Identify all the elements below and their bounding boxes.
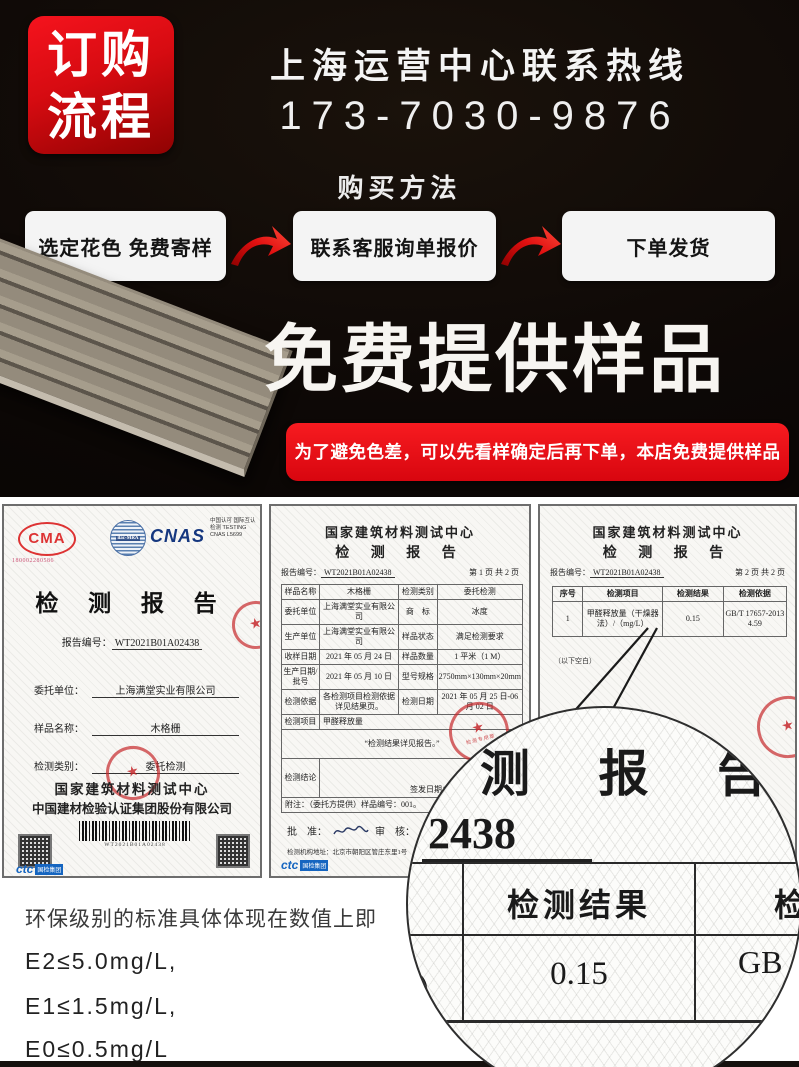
arrow-right-icon bbox=[227, 220, 293, 274]
table-line bbox=[408, 1020, 799, 1023]
page-indicator: 第 2 页 共 2 页 bbox=[735, 567, 785, 578]
eco-grade-intro: 环保级别的标准具体体现在数值上即 bbox=[25, 903, 377, 933]
table-line bbox=[408, 934, 799, 936]
table-row: 样品名称 木格栅 检测类别 委托检测 bbox=[282, 585, 523, 600]
table-line bbox=[694, 862, 696, 1022]
hotline-phone: 173-7030-9876 bbox=[160, 94, 799, 139]
table-row: 生产日期/批号 2021 年 05 月 10 日 型号规格 2750mm×130… bbox=[282, 665, 523, 690]
magnified-result-value: 0.15 bbox=[464, 956, 694, 993]
result-value-cell: 0.15 bbox=[662, 602, 723, 637]
cma-number: 180002280586 bbox=[12, 558, 54, 564]
purchase-method-title: 购买方法 bbox=[0, 168, 799, 205]
page-indicator: 第 1 页 共 2 页 bbox=[469, 567, 519, 578]
eco-grade-e1: E1≤1.5mg/L, bbox=[25, 993, 177, 1020]
org-company: 中国建材检验认证集团股份有限公司 bbox=[4, 798, 260, 817]
report-number-line: 报告编号：WT2021B01A02438 第 2 页 共 2 页 bbox=[550, 567, 785, 578]
order-process-badge: 订购 流程 bbox=[28, 16, 174, 154]
color-notice-banner: 为了避免色差，可以先看样确定后再下单，本店免费提供样品哦！ bbox=[286, 423, 789, 481]
eco-grade-e2: E2≤5.0mg/L, bbox=[25, 948, 177, 975]
table-row: 1 甲醛释放量（干燥器法）/（mg/L） 0.15 GB/T 17657-201… bbox=[553, 602, 787, 637]
result-table: 序号 检测项目 检测结果 检测依据 1 甲醛释放量（干燥器法）/（mg/L） 0… bbox=[552, 586, 787, 637]
table-row: 生产单位 上海满堂实业有限公司 样品状态 满足检测要求 bbox=[282, 625, 523, 650]
ctc-logo: ctc 国检集团 bbox=[16, 862, 63, 876]
table-line bbox=[408, 862, 799, 864]
org-name: 国家建筑材料测试中心 bbox=[271, 522, 529, 541]
hotline-title: 上海运营中心联系热线 bbox=[160, 38, 799, 89]
table-header-row: 序号 检测项目 检测结果 检测依据 bbox=[553, 587, 787, 602]
field-sample-name: 样品名称： 木格栅 bbox=[34, 720, 239, 736]
cnas-caption: 中国认可 国际互认 检测 TESTING CNAS L5699 bbox=[210, 518, 260, 539]
blank-note: （以下空白） bbox=[554, 656, 596, 666]
ctc-logo: ctc 国检集团 bbox=[281, 858, 328, 872]
ilac-mra-icon: ilac-MRA bbox=[110, 520, 146, 556]
step-box-place-order: 下单发货 bbox=[562, 211, 775, 281]
report-number-line: 报告编号：WT2021B01A02438 第 1 页 共 2 页 bbox=[281, 567, 519, 578]
approve-signature bbox=[333, 824, 369, 838]
eco-grade-e0: E0≤0.5mg/L bbox=[25, 1036, 169, 1063]
report-title: 检 测 报 告 bbox=[271, 542, 529, 562]
cma-icon: CMA bbox=[18, 522, 76, 556]
qr-code-icon bbox=[216, 834, 250, 868]
org-name: 国家建筑材料测试中心 bbox=[540, 522, 795, 541]
org-address: 检测机构地址：北京市朝阳区管庄东里1号 bbox=[287, 846, 407, 856]
magnified-header-partial: 检 bbox=[774, 880, 799, 926]
order-process-section: 订购 流程 上海运营中心联系热线 173-7030-9876 购买方法 选定花色… bbox=[0, 0, 799, 497]
arrow-right-icon bbox=[497, 220, 563, 274]
table-row: 委托单位 上海满堂实业有限公司 商 标 冰度 bbox=[282, 600, 523, 625]
magnified-result-header: 检测结果 bbox=[464, 880, 694, 926]
certificate-cover-page: CMA 180002280586 ilac-MRA CNAS 中国认可 国际互认… bbox=[2, 504, 262, 878]
barcode bbox=[79, 821, 191, 841]
magnified-report-title: 测 报 告 bbox=[480, 734, 795, 806]
field-client: 委托单位： 上海满堂实业有限公司 bbox=[34, 682, 239, 698]
magnified-report-number: 2438 bbox=[422, 808, 592, 862]
report-title: 检 测 报 告 bbox=[540, 542, 795, 562]
magnified-basis-partial: GB bbox=[738, 944, 782, 981]
step-box-contact-service: 联系客服询单报价 bbox=[293, 211, 496, 281]
free-sample-title: 免费提供样品 bbox=[215, 300, 775, 407]
badge-line1: 订购 bbox=[28, 24, 174, 86]
org-name: 国家建筑材料测试中心 bbox=[4, 778, 260, 798]
cnas-icon: CNAS bbox=[150, 526, 205, 547]
badge-line2: 流程 bbox=[28, 86, 174, 148]
promo-page: 订购 流程 上海运营中心联系热线 173-7030-9876 购买方法 选定花色… bbox=[0, 0, 799, 1067]
table-row: 收样日期 2021 年 05 月 24 日 样品数量 1 平米（1 M） bbox=[282, 650, 523, 665]
report-title: 检 测 报 告 bbox=[4, 584, 260, 618]
barcode-number: WT2021B01A02438 bbox=[79, 842, 191, 848]
magnified-left-partial: ） bbox=[418, 966, 448, 1010]
report-number: 报告编号：WT2021B01A02438 bbox=[4, 634, 260, 649]
